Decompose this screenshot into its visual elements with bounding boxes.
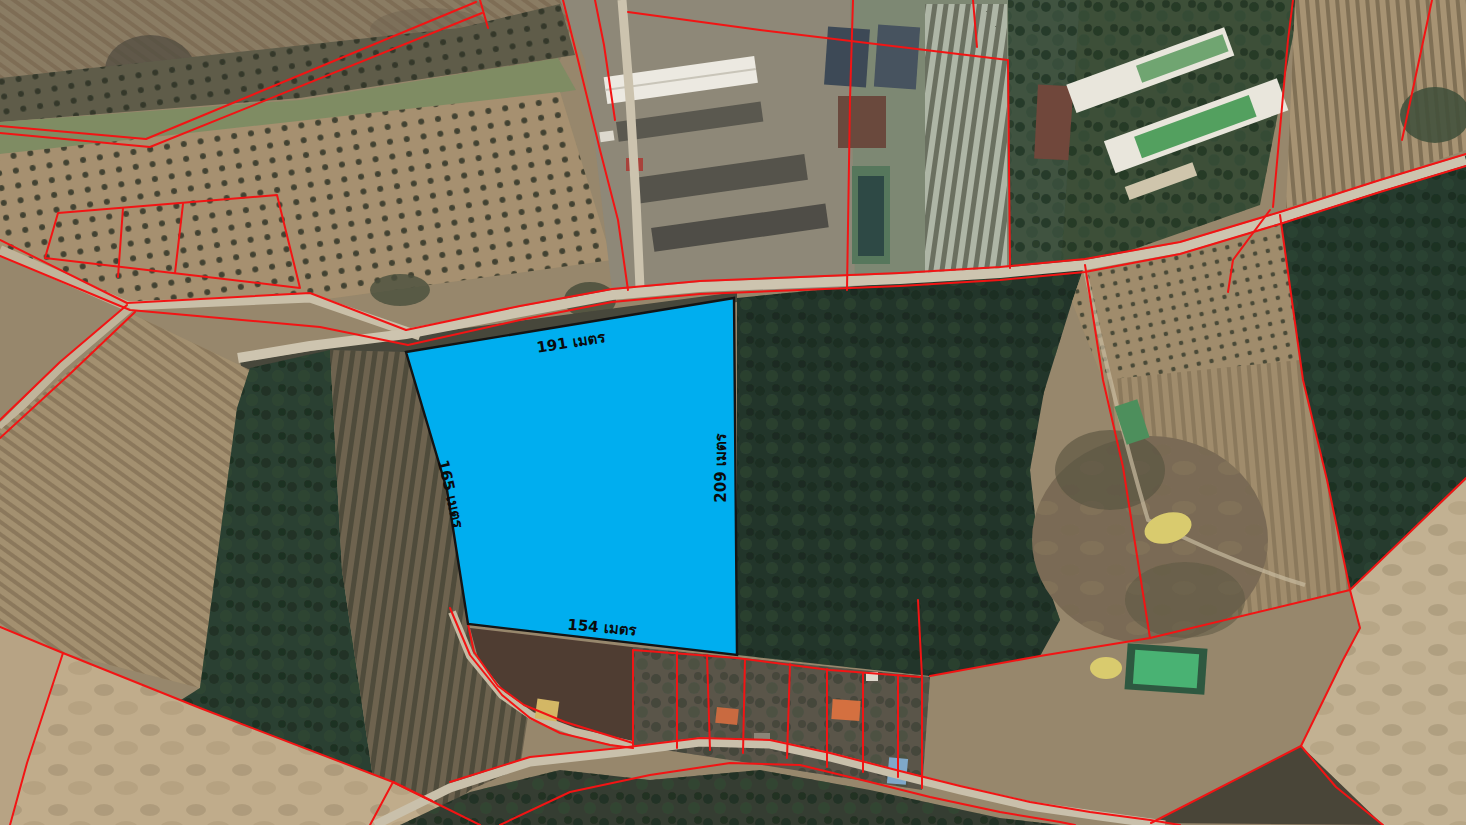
green-court (1133, 650, 1199, 688)
satellite-map-canvas[interactable]: 191 เมตร 165 เมตร 209 เมตร 154 เมตร (0, 0, 1466, 825)
teal-pond (858, 176, 884, 256)
pond (874, 25, 920, 90)
pond (824, 27, 870, 88)
orange-roof-house (831, 699, 860, 721)
brown-pond (838, 96, 886, 148)
dimension-label-right: 209 เมตร (712, 432, 730, 502)
orange-roof-house (715, 707, 739, 725)
yellow-pondlet (1090, 657, 1122, 679)
